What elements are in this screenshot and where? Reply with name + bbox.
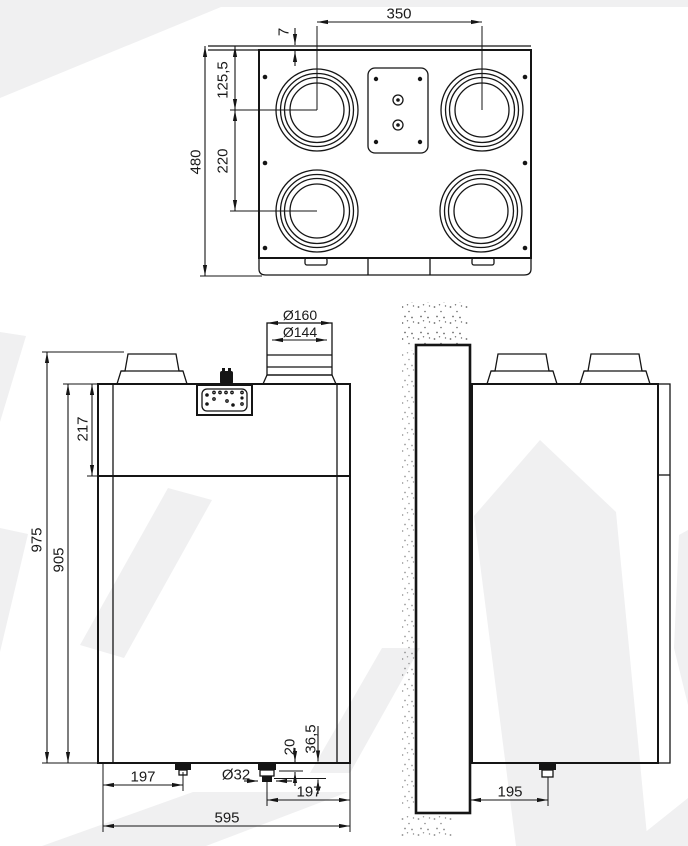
front-duct-left xyxy=(117,354,187,384)
side-duct-left xyxy=(487,354,557,384)
front-view-dimensions: Ø160 Ø144 975 905 217 197 Ø32 xyxy=(29,307,351,832)
dim-197-right-label: 197 xyxy=(296,784,321,801)
side-duct-right xyxy=(580,354,650,384)
top-view-body xyxy=(259,50,531,258)
dim-d144-label: Ø144 xyxy=(283,324,317,340)
dim-36-5-label: 36,5 xyxy=(303,724,320,753)
wall xyxy=(416,345,470,813)
dim-595-label: 595 xyxy=(214,810,239,827)
wall-speckle-top xyxy=(402,302,468,345)
front-view: Ø160 Ø144 975 905 217 197 Ø32 xyxy=(29,307,351,832)
dim-480-label: 480 xyxy=(188,149,205,174)
dim-350-label: 350 xyxy=(386,6,411,23)
dim-195-label: 195 xyxy=(497,784,522,801)
bottom-rail xyxy=(259,258,531,275)
screw-dots xyxy=(263,75,528,251)
control-knob xyxy=(220,371,233,384)
wall-speckle-left xyxy=(402,350,416,810)
dim-d160-label: Ø160 xyxy=(283,307,317,323)
dim-197-left-label: 197 xyxy=(130,769,155,786)
technical-drawing-canvas: 350 7 125,5 220 480 xyxy=(0,0,688,846)
dim-20-label: 20 xyxy=(282,739,299,756)
dim-7-label: 7 xyxy=(276,28,293,36)
port-bottom-right xyxy=(440,170,522,252)
top-view: 350 7 125,5 220 480 xyxy=(188,6,532,277)
front-drain-right xyxy=(258,763,276,782)
control-panel xyxy=(197,368,252,415)
side-front-panel xyxy=(658,384,670,763)
rail-slot-right xyxy=(472,258,494,265)
rail-slot-left xyxy=(305,258,327,265)
electrical-plate xyxy=(368,68,428,153)
dim-905-label: 905 xyxy=(51,547,68,572)
side-drain xyxy=(539,763,556,777)
dim-975-label: 975 xyxy=(29,527,46,552)
dim-217-label: 217 xyxy=(75,416,92,441)
dim-220-label: 220 xyxy=(215,148,232,173)
wall-speckle-bottom xyxy=(400,815,452,837)
dim-125-5-label: 125,5 xyxy=(215,61,232,99)
